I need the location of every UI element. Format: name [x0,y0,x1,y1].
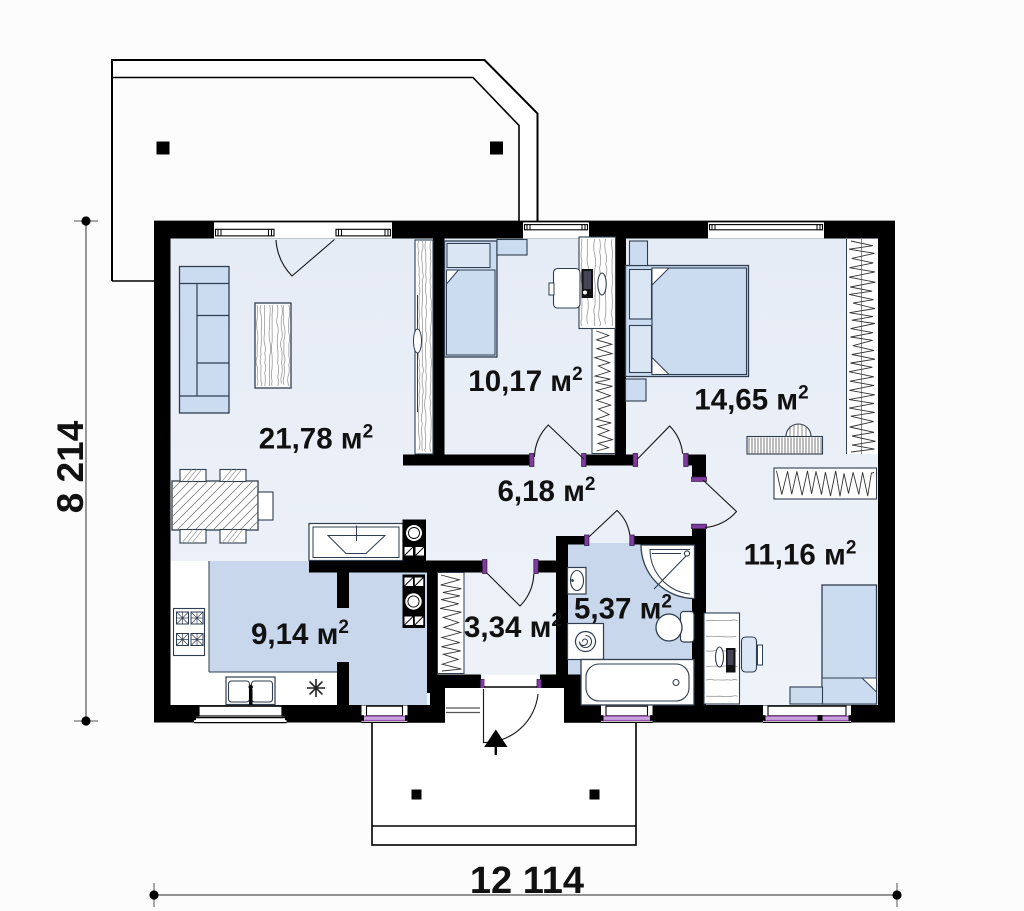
svg-text:10,17 м2: 10,17 м2 [468,364,582,398]
svg-text:14,65 м2: 14,65 м2 [694,383,808,417]
svg-text:11,16 м2: 11,16 м2 [744,538,857,572]
svg-text:9,14 м2: 9,14 м2 [251,617,349,651]
svg-text:3,34 м2: 3,34 м2 [464,610,562,644]
svg-text:5,37 м2: 5,37 м2 [574,592,672,626]
svg-text:21,78 м2: 21,78 м2 [259,422,373,456]
svg-text:12 114: 12 114 [470,860,584,902]
svg-text:8 214: 8 214 [50,420,91,513]
svg-text:6,18 м2: 6,18 м2 [497,474,595,508]
